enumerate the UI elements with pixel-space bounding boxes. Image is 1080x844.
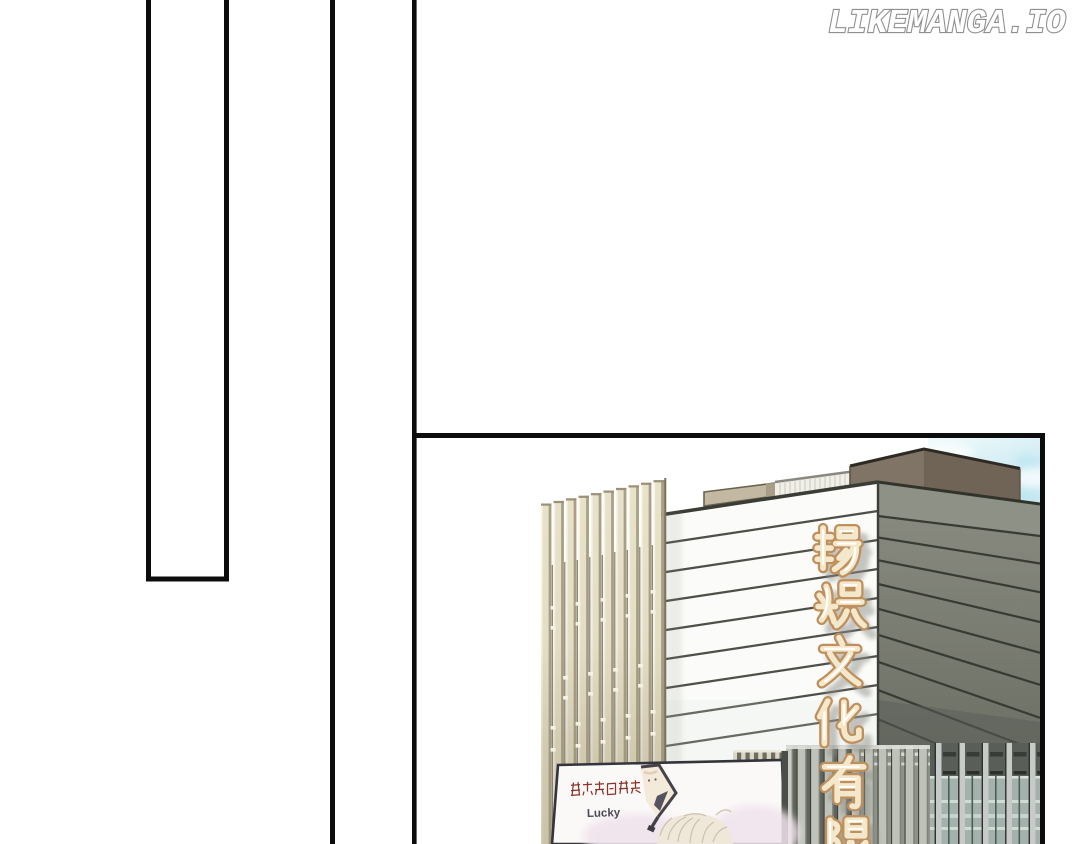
svg-text:LIKEMANGA.IO: LIKEMANGA.IO xyxy=(828,5,1066,42)
svg-text:Lucky: Lucky xyxy=(587,807,621,820)
